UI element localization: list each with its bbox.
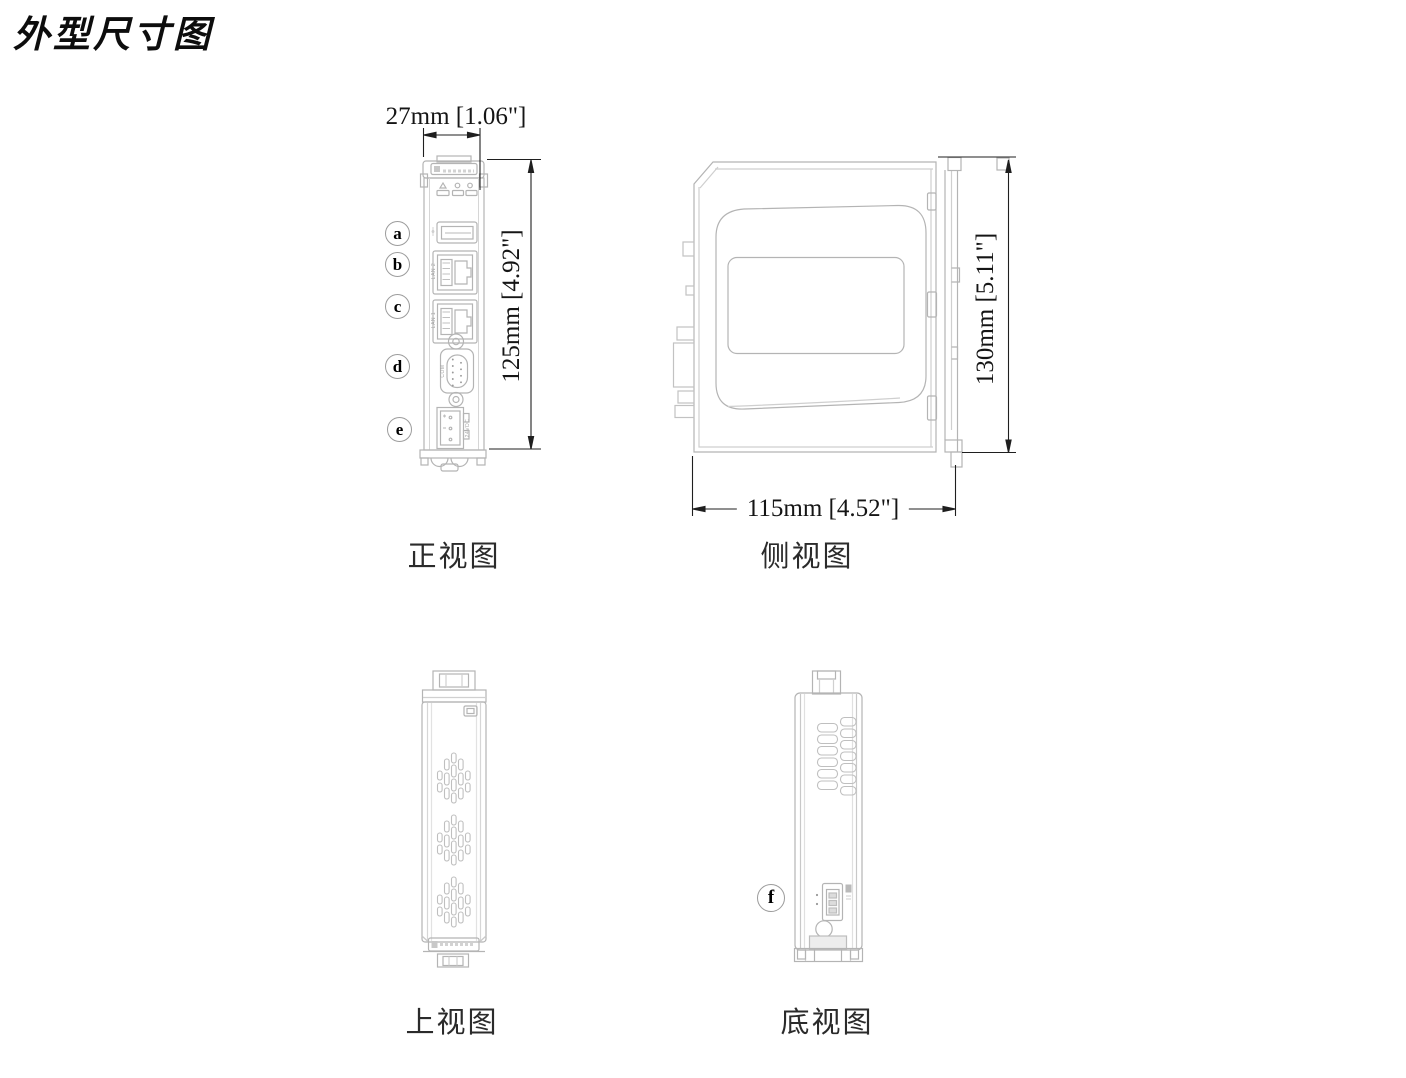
side-width-dimension: 115mm [4.52"] — [737, 495, 909, 523]
side-view-caption: 侧视图 — [760, 533, 853, 575]
port-label-e: e — [387, 417, 412, 442]
power-port-text: 24VDC — [465, 410, 473, 446]
top-view-caption: 上视图 — [405, 999, 498, 1041]
com-port-text: COM — [440, 353, 448, 389]
front-view-caption: 正视图 — [407, 533, 500, 575]
dimension-drawing-page: 外型尺寸图 — [0, 0, 1406, 1078]
bottom-view-caption: 底视图 — [780, 999, 873, 1041]
side-height-dimension: 130mm [5.11"] — [971, 184, 1001, 434]
port-label-d: d — [385, 354, 410, 379]
port-label-b: b — [385, 252, 410, 277]
front-height-dimension: 125mm [4.92"] — [497, 181, 527, 431]
front-width-dimension: 27mm [1.06"] — [386, 103, 527, 131]
dimension-lines — [0, 0, 1406, 1078]
lan1-port-text: LAN 1 — [431, 302, 439, 338]
port-label-a: a — [385, 221, 410, 246]
port-label-f: f — [757, 884, 785, 912]
port-label-c: c — [385, 294, 410, 319]
lan2-port-text: LAN 2 — [431, 253, 439, 289]
front-width-dim-line — [424, 128, 481, 190]
